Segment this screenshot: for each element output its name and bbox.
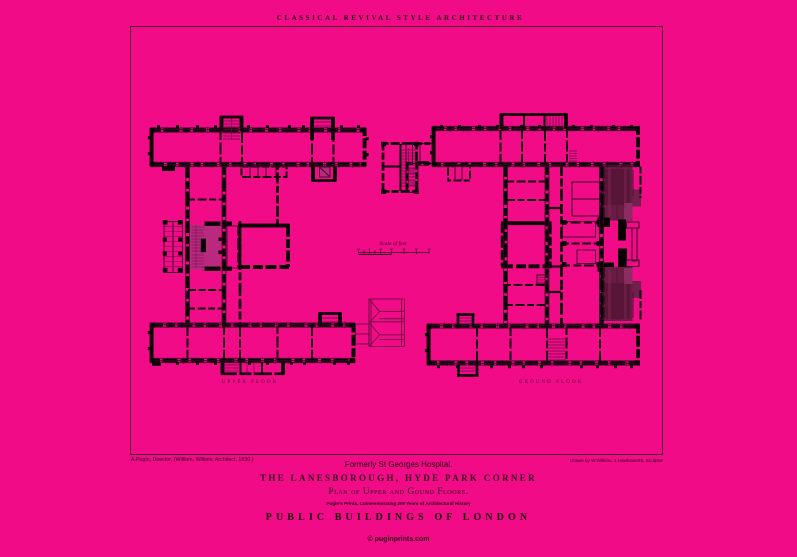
svg-text:0: 0 xyxy=(369,247,371,251)
svg-text:50: 50 xyxy=(427,247,431,251)
svg-text:10: 10 xyxy=(379,247,383,251)
svg-text:40: 40 xyxy=(415,247,419,251)
svg-text:10: 10 xyxy=(357,247,361,251)
svg-text:20: 20 xyxy=(390,247,394,251)
svg-text:30: 30 xyxy=(402,247,406,251)
svg-text:UPPER FLOOR: UPPER FLOOR xyxy=(222,380,278,385)
svg-text:GROUND FLOOR: GROUND FLOOR xyxy=(519,380,583,385)
